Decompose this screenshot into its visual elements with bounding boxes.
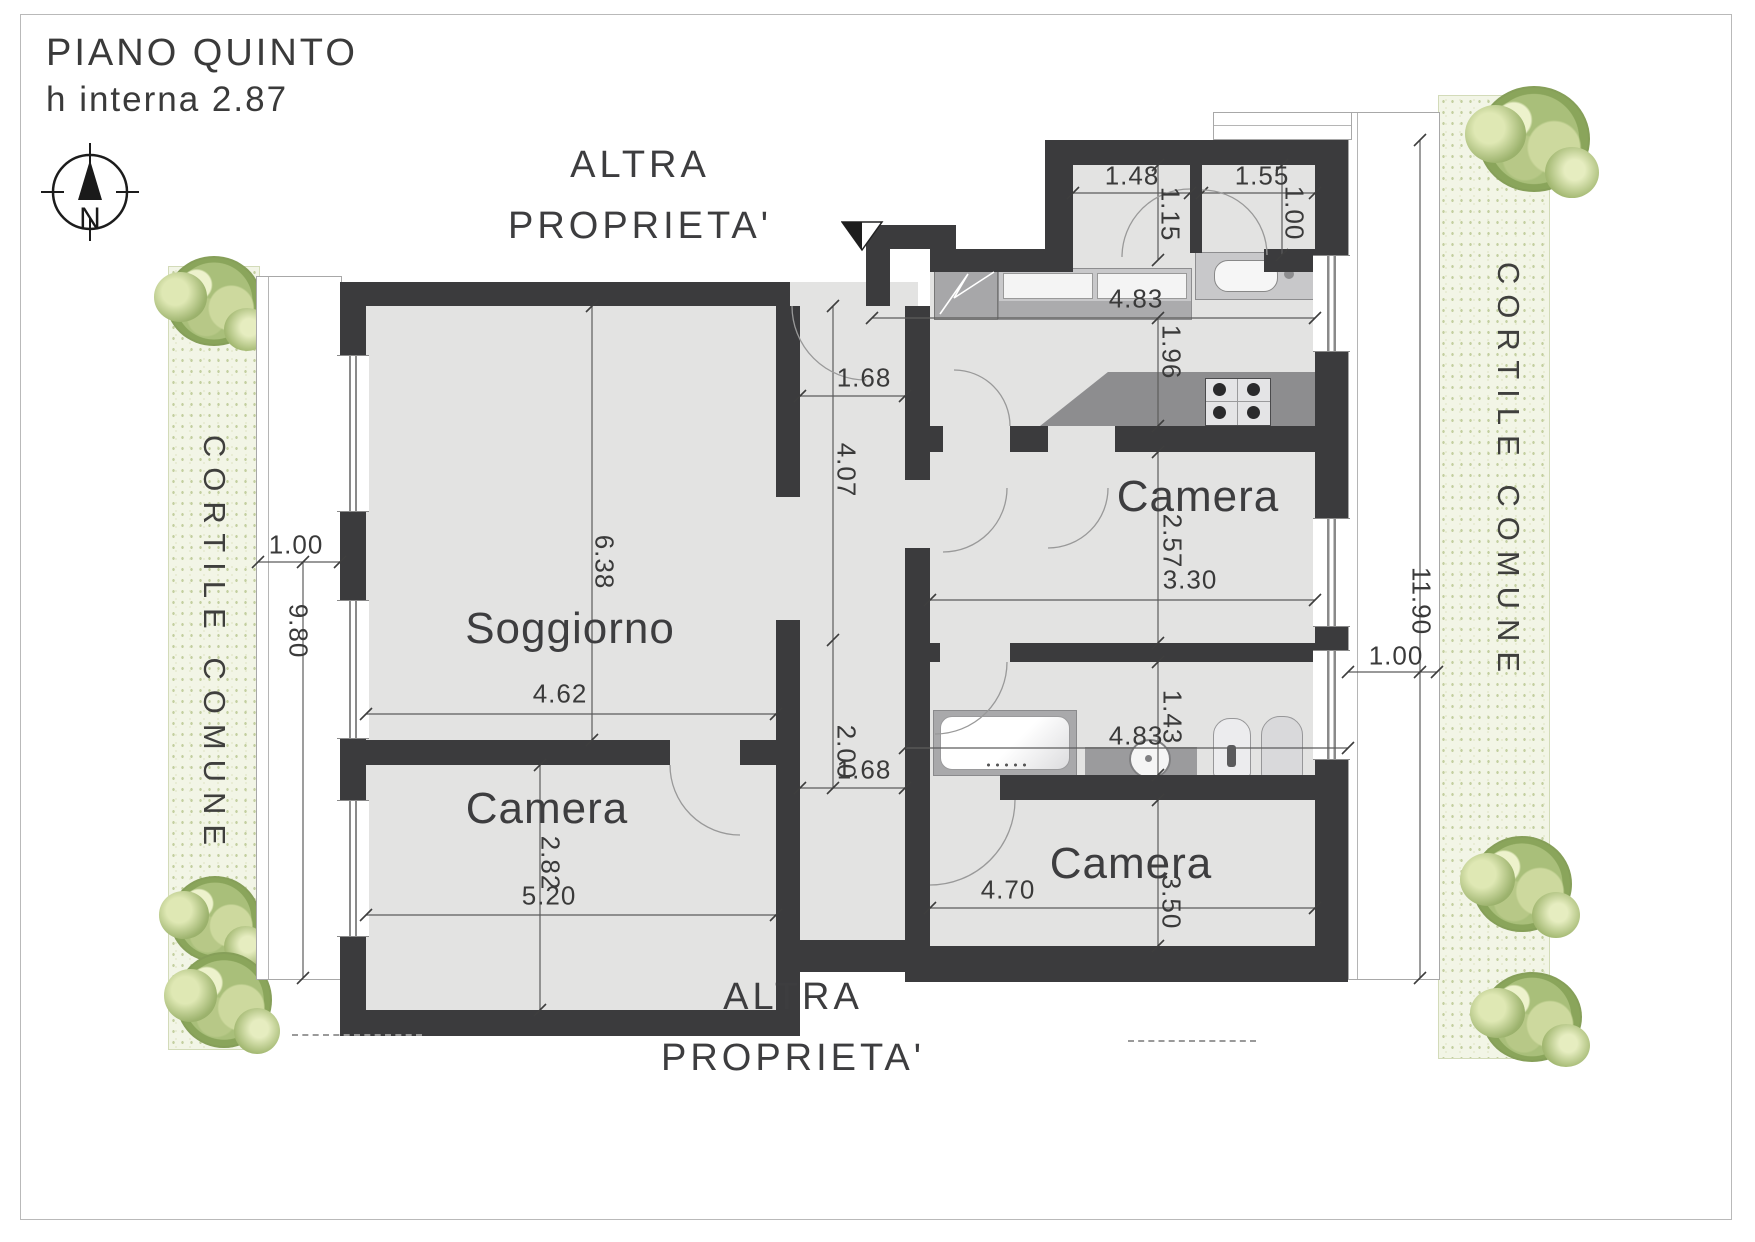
dim-camera-sud-depth: 3.50 [1156,875,1187,930]
wall [1264,249,1315,272]
dim-entry-left-depth: 1.15 [1155,187,1186,242]
dim-soggiorno-width: 4.62 [533,679,588,710]
wall [905,452,930,480]
toilet-icon [1261,716,1303,777]
floorplan-canvas: PIANO QUINTO h interna 2.87 N [0,0,1755,1242]
wall [905,548,930,775]
wall [905,946,1348,982]
left-courtyard-label: CORTILE COMUNE [196,435,232,855]
window-icon [1313,518,1350,627]
wall [776,306,800,497]
top-property-label: ALTRA PROPRIETA' [508,135,772,257]
dim-camera-nord-depth: 2.57 [1157,514,1188,569]
tree-icon [1472,836,1572,932]
room-label-soggiorno: Soggiorno [465,604,675,654]
dim-bath-width: 4.83 [1109,721,1164,752]
window-icon [337,600,369,739]
floor-title: PIANO QUINTO [46,32,358,75]
boundary-dash [292,1034,422,1036]
wall [1190,165,1202,253]
ceiling-height-note: h interna 2.87 [46,80,288,120]
stove-icon [1205,378,1271,426]
dim-hall-lower-width: 1.68 [837,755,892,786]
wall [905,306,930,426]
dim-camera-nord-width: 3.30 [1163,565,1218,596]
dim-kitchen-depth: 1.96 [1156,325,1187,380]
dim-hall-upper-length: 4.07 [831,443,862,498]
window-icon [337,355,369,512]
tree-icon [1478,86,1590,192]
wall [1045,165,1073,263]
wall [1115,426,1315,452]
window-icon [337,800,369,937]
dim-camera-sud-width: 4.70 [981,875,1036,906]
kitchen-cabinet [934,268,998,320]
tree-icon [166,256,262,346]
tree-icon [170,876,260,962]
room-label-camera-ovest: Camera [466,784,629,834]
bidet-icon [1213,718,1251,777]
dim-left-balcony-length: 9.80 [283,604,314,659]
wall [905,775,930,972]
dim-left-balcony-width: 1.00 [269,530,324,561]
bottom-property-label: ALTRA PROPRIETA' [661,967,925,1089]
wall [340,740,670,765]
wall [930,643,940,662]
right-courtyard-label: CORTILE COMUNE [1490,262,1526,682]
boundary-dash [1128,1040,1256,1042]
wall [340,282,790,306]
wall [1010,643,1315,662]
room-label-camera-nord: Camera [1117,472,1280,522]
dim-hall-upper-width: 1.68 [837,363,892,394]
top-terrace-strip [1213,112,1352,140]
dim-entry-right-depth: 1.00 [1279,186,1310,241]
dim-kitchen-width: 4.83 [1109,284,1164,315]
wall [1045,140,1348,165]
dim-soggiorno-length: 6.38 [589,535,620,590]
bathtub-icon [933,710,1077,776]
dim-entry-left-width: 1.48 [1105,161,1160,192]
window-icon [1313,650,1350,760]
wall [740,740,800,765]
dim-camera-ovest-width: 5.20 [522,881,577,912]
window-icon [1313,255,1350,352]
dim-right-balcony-width: 1.00 [1369,641,1424,672]
tree-icon [1482,972,1582,1062]
dim-bath-depth: 1.43 [1157,690,1188,745]
right-balcony [1348,112,1440,980]
room-label-camera-sud: Camera [1050,839,1213,889]
wall [905,426,943,452]
wall [1000,775,1315,800]
dim-right-balcony-length: 11.90 [1406,567,1437,635]
wall [1010,426,1048,452]
